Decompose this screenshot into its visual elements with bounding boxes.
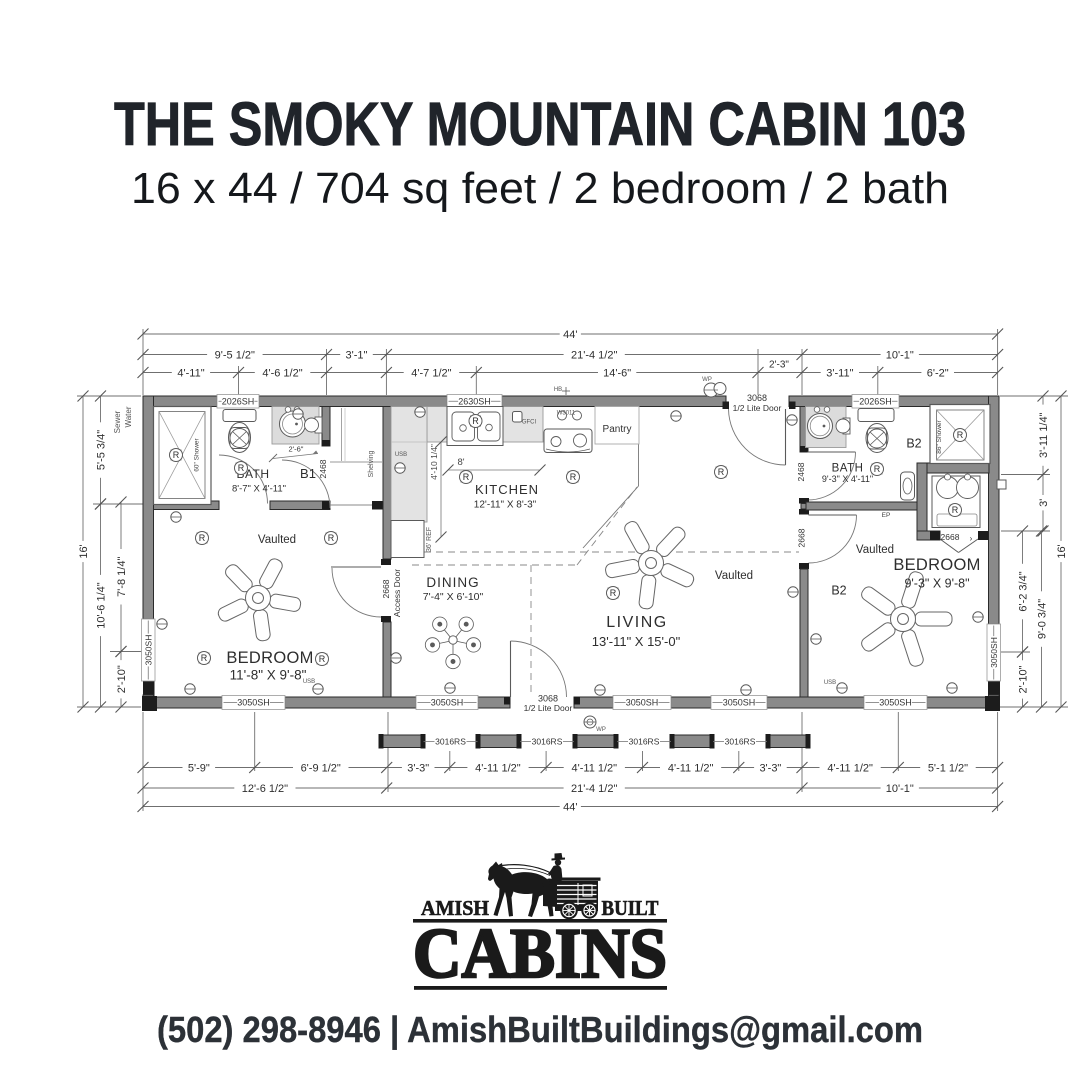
svg-text:6'-2 3/4": 6'-2 3/4"	[1017, 571, 1029, 611]
svg-text:DINING: DINING	[426, 575, 479, 590]
svg-text:3016RS: 3016RS	[629, 737, 660, 747]
svg-text:R: R	[610, 588, 617, 598]
svg-text:B2: B2	[831, 584, 846, 598]
svg-text:36' REF: 36' REF	[426, 527, 433, 552]
svg-text:3016RS: 3016RS	[725, 737, 756, 747]
svg-text:Pantry: Pantry	[603, 424, 632, 435]
svg-text:R: R	[201, 653, 208, 663]
svg-text:2'-10": 2'-10"	[1017, 665, 1029, 693]
svg-text:44': 44'	[563, 801, 577, 813]
svg-text:2026SH: 2026SH	[222, 396, 255, 406]
svg-text:13'-11" X 15'-0": 13'-11" X 15'-0"	[592, 634, 681, 649]
svg-text:21'-4 1/2": 21'-4 1/2"	[571, 783, 617, 795]
svg-text:3050SH: 3050SH	[989, 637, 999, 668]
svg-text:6'-9 1/2": 6'-9 1/2"	[301, 762, 341, 774]
svg-text:2026SH: 2026SH	[859, 396, 892, 406]
svg-text:Shelving: Shelving	[368, 450, 375, 477]
svg-text:Access Door: Access Door	[392, 569, 402, 617]
svg-text:8'-7" X 4'-11": 8'-7" X 4'-11"	[232, 484, 286, 495]
svg-text:8': 8'	[457, 457, 464, 468]
svg-text:R: R	[472, 416, 479, 426]
svg-text:WP: WP	[596, 727, 606, 733]
svg-text:2668: 2668	[941, 532, 960, 542]
svg-text:3': 3'	[1038, 499, 1050, 507]
svg-text:R: R	[952, 505, 959, 515]
svg-text:BEDROOM: BEDROOM	[893, 556, 980, 574]
svg-text:WP: WP	[702, 377, 712, 383]
svg-text:CABINS: CABINS	[413, 915, 667, 993]
svg-text:2668: 2668	[381, 579, 391, 598]
svg-text:3068: 3068	[538, 694, 558, 704]
svg-text:10'-6 1/4": 10'-6 1/4"	[95, 582, 107, 628]
svg-text:EP: EP	[882, 512, 891, 519]
svg-text:11'-8" X 9'-8": 11'-8" X 9'-8"	[230, 668, 307, 683]
svg-text:USB: USB	[824, 680, 836, 686]
svg-text:12'-6 1/2": 12'-6 1/2"	[242, 783, 288, 795]
svg-text:12'-11" X 8'-3": 12'-11" X 8'-3"	[474, 500, 537, 511]
svg-text:4'-10 1/4": 4'-10 1/4"	[429, 444, 439, 480]
svg-text:9'-3" X 4'-11": 9'-3" X 4'-11"	[822, 474, 873, 484]
svg-text:B2: B2	[906, 437, 921, 451]
svg-text:(502) 298-8946 | AmishBuiltBui: (502) 298-8946 | AmishBuiltBuildings@gma…	[157, 1009, 923, 1051]
svg-text:7'-8 1/4": 7'-8 1/4"	[116, 557, 128, 597]
svg-text:10'-1": 10'-1"	[886, 349, 914, 361]
svg-text:3'-1": 3'-1"	[346, 349, 368, 361]
svg-text:R: R	[874, 464, 881, 474]
svg-text:BATH: BATH	[832, 463, 864, 475]
svg-text:4'-11": 4'-11"	[177, 367, 204, 379]
svg-text:3'-3": 3'-3"	[759, 762, 781, 774]
svg-text:9'-5 1/2": 9'-5 1/2"	[215, 349, 255, 361]
svg-text:R: R	[570, 472, 577, 482]
svg-text:3050SH: 3050SH	[879, 698, 912, 708]
svg-text:Sewer: Sewer	[113, 410, 122, 433]
svg-text:R: R	[957, 430, 964, 440]
svg-text:21'-4 1/2": 21'-4 1/2"	[571, 349, 617, 361]
svg-text:3016RS: 3016RS	[532, 737, 563, 747]
svg-text:44': 44'	[563, 329, 577, 341]
svg-text:R: R	[718, 467, 725, 477]
svg-text:4'-11 1/2": 4'-11 1/2"	[827, 762, 873, 774]
svg-text:4'-6 1/2": 4'-6 1/2"	[262, 367, 302, 379]
svg-text:2'-10": 2'-10"	[116, 665, 128, 693]
svg-text:16 x 44 / 704 sq feet / 2 bedr: 16 x 44 / 704 sq feet / 2 bedroom / 2 ba…	[131, 164, 949, 213]
svg-text:USB: USB	[303, 679, 315, 685]
svg-text:USB: USB	[395, 452, 407, 458]
svg-text:2'-6": 2'-6"	[289, 445, 304, 454]
svg-text:Vaulted: Vaulted	[258, 534, 296, 546]
svg-text:16': 16'	[78, 544, 90, 558]
svg-text:3'-3": 3'-3"	[407, 762, 429, 774]
svg-text:2'-3": 2'-3"	[769, 360, 789, 371]
svg-text:R: R	[173, 450, 180, 460]
svg-text:4'-11 1/2": 4'-11 1/2"	[475, 762, 521, 774]
svg-text:HB: HB	[554, 387, 562, 393]
svg-text:60" Shower: 60" Shower	[194, 437, 201, 471]
svg-text:3016RS: 3016RS	[435, 737, 466, 747]
svg-text:4'-11 1/2": 4'-11 1/2"	[572, 762, 618, 774]
svg-text:3050SH: 3050SH	[237, 698, 270, 708]
svg-text:86" Shower: 86" Shower	[936, 419, 943, 453]
svg-text:2668: 2668	[797, 528, 807, 547]
svg-text:3'-11 1/4": 3'-11 1/4"	[1038, 412, 1050, 458]
svg-text:9'-3" X 9'-8": 9'-3" X 9'-8"	[904, 577, 969, 591]
svg-text:16': 16'	[1056, 544, 1068, 558]
svg-text:2630SH: 2630SH	[458, 396, 491, 406]
svg-text:1/2 Lite Door: 1/2 Lite Door	[524, 703, 573, 713]
svg-text:›: ›	[970, 534, 973, 543]
svg-text:Vaulted: Vaulted	[856, 544, 894, 556]
svg-text:4'-7 1/2": 4'-7 1/2"	[411, 367, 451, 379]
svg-text:R: R	[199, 533, 206, 543]
svg-text:4'-11 1/2": 4'-11 1/2"	[668, 762, 714, 774]
svg-text:Water: Water	[124, 406, 133, 427]
svg-text:B1: B1	[300, 466, 316, 481]
svg-text:1/2 Lite Door: 1/2 Lite Door	[733, 403, 782, 413]
svg-text:LIVING: LIVING	[606, 614, 667, 631]
svg-text:2468: 2468	[796, 462, 806, 481]
svg-text:KITCHEN: KITCHEN	[475, 482, 539, 497]
svg-text:R: R	[238, 463, 245, 473]
svg-text:R: R	[319, 654, 326, 664]
svg-text:5'-9": 5'-9"	[188, 762, 210, 774]
svg-text:3050SH: 3050SH	[143, 635, 153, 666]
svg-text:6'-2": 6'-2"	[927, 367, 949, 379]
svg-text:2468: 2468	[318, 459, 328, 478]
svg-text:9'-0 3/4": 9'-0 3/4"	[1036, 599, 1048, 639]
svg-text:14'-6": 14'-6"	[603, 367, 631, 379]
svg-text:7'-4" X 6'-10": 7'-4" X 6'-10"	[423, 591, 484, 603]
svg-text:Vaulted: Vaulted	[715, 570, 753, 582]
svg-text:THE SMOKY MOUNTAIN CABIN 103: THE SMOKY MOUNTAIN CABIN 103	[114, 90, 966, 158]
svg-text:3050SH: 3050SH	[431, 698, 464, 708]
svg-text:3050SH: 3050SH	[723, 698, 756, 708]
svg-text:3'-11": 3'-11"	[826, 367, 853, 379]
svg-text:R: R	[328, 533, 335, 543]
svg-text:3050SH: 3050SH	[626, 698, 659, 708]
svg-text:5'-5 3/4": 5'-5 3/4"	[95, 430, 107, 470]
svg-text:BEDROOM: BEDROOM	[226, 649, 313, 667]
svg-text:10'-1": 10'-1"	[886, 783, 914, 795]
svg-text:GFCI: GFCI	[522, 420, 537, 426]
svg-text:3068: 3068	[747, 393, 767, 403]
svg-text:5'-1 1/2": 5'-1 1/2"	[928, 762, 968, 774]
svg-text:R: R	[463, 472, 470, 482]
